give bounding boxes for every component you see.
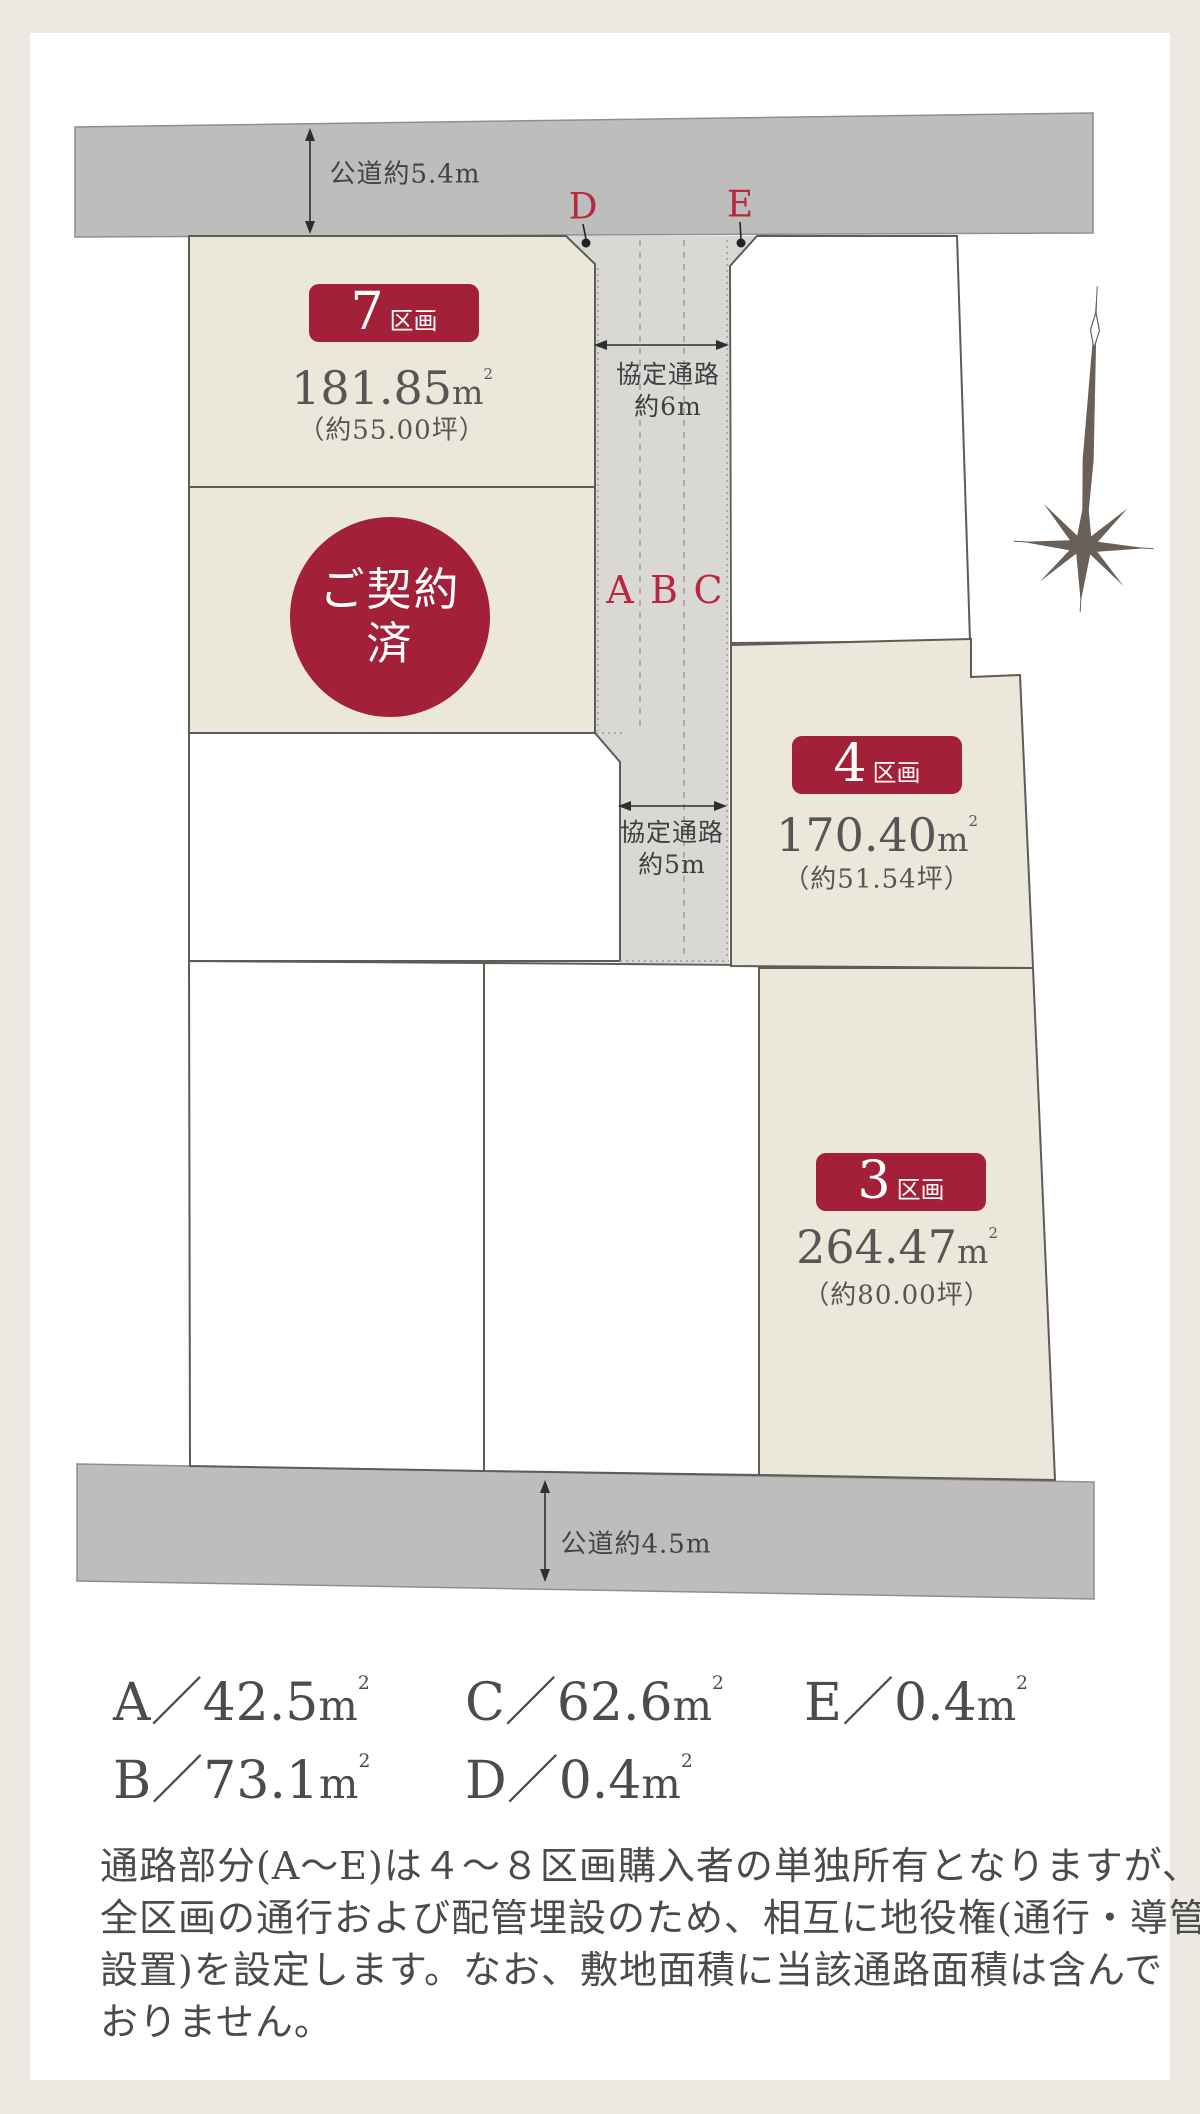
passage-6m-line1: 協定通路: [616, 359, 720, 391]
road-top-label: 公道約5.4m: [329, 154, 480, 191]
lot4-area: 170.40m2: [776, 808, 978, 862]
compass-icon: [1010, 283, 1167, 616]
road-bottom-label: 公道約4.5m: [560, 1524, 711, 1561]
lot3-badge-suffix: 区画: [897, 1170, 945, 1205]
legend-item-a: A／42.5m2: [113, 1660, 370, 1735]
passage-5m-label: 協定通路 約5m: [620, 817, 724, 881]
legend-item-c: C／62.6m2: [465, 1660, 724, 1735]
passage-5m-line1: 協定通路: [620, 817, 724, 849]
lot7-sold-badge: ご契約 済: [290, 517, 490, 717]
lot3-badge-number: 3: [857, 1153, 890, 1209]
lot4-shape: [731, 639, 1033, 968]
legend-item-e: E／0.4m2: [804, 1660, 1028, 1735]
passage-6m-label: 協定通路 約6m: [616, 359, 720, 423]
note-line-4: おりません。: [100, 1996, 1200, 2048]
lot7-badge: 7 区画: [309, 284, 479, 342]
lot7-sold-line1: ご契約: [319, 563, 460, 617]
marker-a: A: [606, 568, 633, 612]
lot-middle: [189, 733, 620, 961]
marker-e: E: [727, 185, 753, 226]
lot-east-upper: [730, 236, 970, 643]
lot-bottom-left: [189, 961, 484, 1471]
lot4-tsubo: （約51.54坪）: [783, 859, 970, 896]
legend-item-d: D／0.4m2: [465, 1738, 693, 1813]
marker-c: C: [693, 568, 722, 612]
lot7-badge-suffix: 区画: [390, 301, 438, 336]
lot7-area: 181.85m2: [291, 361, 493, 415]
lot3-area-value: 264.47: [796, 1220, 957, 1274]
legend-item-b: B／73.1m2: [113, 1738, 370, 1813]
lot7-badge-number: 7: [350, 284, 383, 340]
marker-d: D: [569, 187, 598, 228]
lot7-area-value: 181.85: [291, 361, 452, 415]
lot4-badge-suffix: 区画: [873, 753, 921, 788]
lot3-badge: 3 区画: [816, 1153, 986, 1211]
marker-b: B: [650, 568, 678, 612]
note-line-1: 通路部分(A〜E)は４〜８区画購入者の単独所有となりますが、: [100, 1840, 1200, 1892]
lot-bottom-center: [484, 963, 759, 1475]
note-line-3: 設置)を設定します。なお、敷地面積に当該通路面積は含んで: [100, 1944, 1200, 1996]
lot3-area-unit: m2: [957, 1232, 998, 1271]
lot3-area: 264.47m2: [796, 1220, 998, 1274]
lot3-tsubo: （約80.00坪）: [803, 1275, 990, 1312]
note-paragraph: 通路部分(A〜E)は４〜８区画購入者の単独所有となりますが、 全区画の通行および…: [100, 1840, 1200, 2048]
note-line-2: 全区画の通行および配管埋設のため、相互に地役権(通行・導管: [100, 1892, 1200, 1944]
lot7-sold-line2: 済: [366, 617, 413, 671]
lot4-area-value: 170.40: [776, 808, 937, 862]
lot4-badge: 4 区画: [792, 736, 962, 794]
site-plan-canvas: 公道約5.4m 公道約4.5m 協定通路 約6m 協定通路 約5m 7 区画 1…: [0, 0, 1200, 2114]
lot7-area-unit: m2: [452, 373, 493, 412]
lot4-badge-number: 4: [833, 736, 866, 792]
passage-6m-line2: 約6m: [616, 391, 720, 423]
lot7-tsubo: （約55.00坪）: [298, 410, 485, 447]
lot4-area-unit: m2: [937, 820, 978, 859]
passage-5m-line2: 約5m: [620, 849, 724, 881]
